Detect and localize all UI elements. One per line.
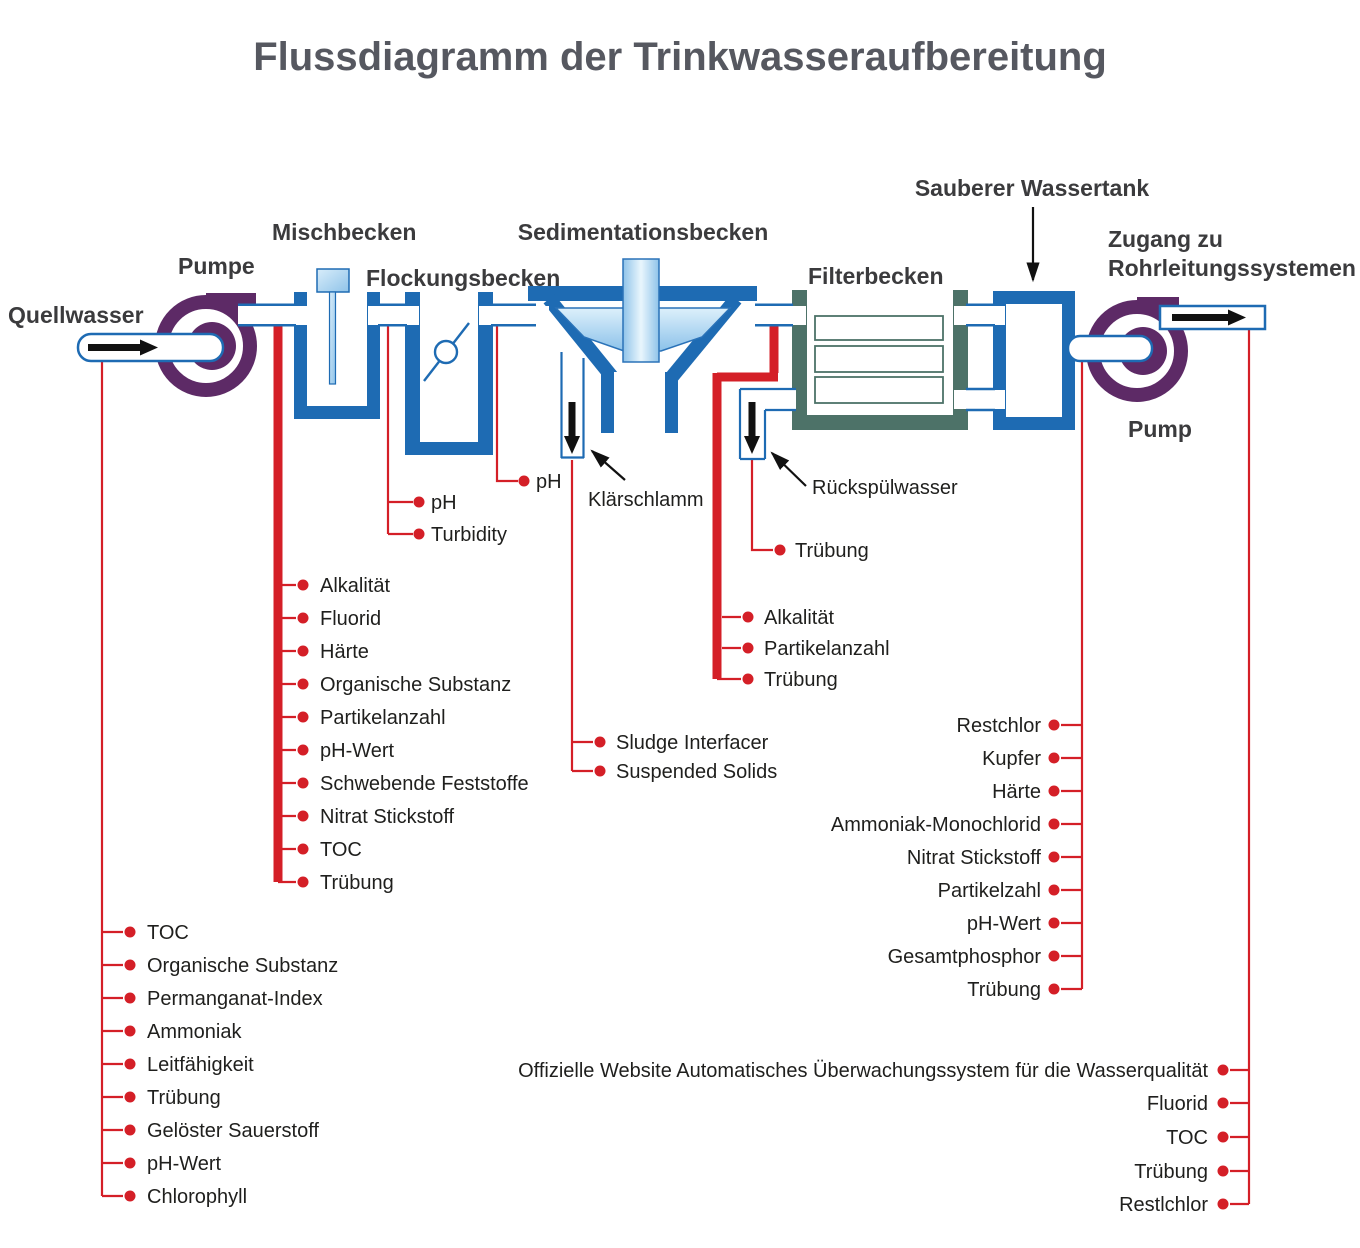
monitor-item-label: TOC (320, 839, 362, 861)
monitor-item-label: Permanganat-Index (147, 988, 323, 1010)
monitor-item-label: TOC (1166, 1127, 1208, 1149)
stage-label-source: Quellwasser (8, 302, 144, 328)
monitor-item-label: Trübung (1134, 1161, 1208, 1183)
backwash-monitor-line (752, 460, 773, 550)
monitor-item-label: Nitrat Stickstoff (320, 806, 455, 828)
monitor-item-label: Nitrat Stickstoff (907, 847, 1042, 869)
monitor-item-label: Fluorid (1147, 1093, 1208, 1115)
monitor-item-label: Suspended Solids (616, 761, 777, 783)
monitor-item-label: Alkalität (764, 607, 834, 629)
monitor-item-label: Restchlor (957, 715, 1042, 737)
monitor-item-label: Trübung (795, 540, 869, 562)
monitor-item-label: Partikelanzahl (764, 638, 890, 660)
stage-label-sedimentation-basin: Sedimentationsbecken (518, 219, 769, 245)
filter-layer (815, 377, 943, 403)
monitor-item-label: Ammoniak (147, 1021, 242, 1043)
source-water-monitor-line (102, 361, 123, 1196)
monitor-item-label: Trübung (147, 1087, 221, 1109)
monitor-item-label: Trübung (320, 872, 394, 894)
monitor-item-label: TOC (147, 922, 189, 944)
stage-label-pipe-access-2: Rohrleitungssystemen (1108, 255, 1356, 281)
sludge-outlet (561, 352, 584, 458)
monitor-item-label: pH-Wert (320, 740, 395, 762)
monitor-item-label: Schwebende Feststoffe (320, 773, 529, 795)
monitor-item-label: Härte (992, 781, 1041, 803)
filter-layer (815, 346, 943, 372)
monitor-item-label: pH (536, 471, 562, 493)
monitor-item-label: Offizielle Website Automatisches Überwac… (518, 1060, 1208, 1082)
monitor-item-label: Partikelanzahl (320, 707, 446, 729)
monitor-item-label: Turbidity (431, 524, 507, 546)
stage-label-inlet-pump: Pumpe (178, 253, 255, 279)
flocculation-outlet-line (497, 326, 518, 481)
monitor-item-label: Gelöster Sauerstoff (147, 1120, 319, 1142)
filter-layer (815, 316, 943, 340)
page-title: Flussdiagramm der Trinkwasseraufbereitun… (253, 35, 1107, 79)
clarifier-shaft (623, 259, 659, 362)
monitor-item-label: Restlchlor (1119, 1194, 1208, 1216)
backwash-pointer-arrow (772, 453, 806, 486)
monitor-item-label: Alkalität (320, 575, 390, 597)
tank-outlet-pipe (1068, 336, 1152, 361)
diagram-canvas: Flussdiagramm der Trinkwasseraufbereitun… (0, 0, 1360, 1248)
mixer-icon (317, 269, 349, 384)
monitor-item-label: pH-Wert (967, 913, 1042, 935)
monitor-item-label: Härte (320, 641, 369, 663)
monitor-item-label: Kupfer (982, 748, 1041, 770)
monitor-item-label: Fluorid (320, 608, 381, 630)
flocculator-valve-icon (424, 323, 469, 381)
water-treatment-flow-diagram: Flussdiagramm der Trinkwasseraufbereitun… (0, 0, 1360, 1248)
monitor-item-label: Organische Substanz (147, 955, 338, 977)
monitor-item-label: Chlorophyll (147, 1186, 247, 1208)
tank-outlet-monitor-line (1061, 361, 1082, 989)
monitor-item-label: pH-Wert (147, 1153, 222, 1175)
backwash-outlet (740, 389, 796, 459)
stage-label-filter-basin: Filterbecken (808, 263, 944, 289)
monitor-item-label: pH (431, 492, 457, 514)
stage-label-mixing-basin: Mischbecken (272, 219, 416, 245)
clean-water-tank (993, 291, 1075, 430)
monitor-item-label: Ammoniak-Monochlorid (831, 814, 1041, 836)
monitor-item-label: Partikelzahl (938, 880, 1041, 902)
monitor-item-label: Gesamtphosphor (888, 946, 1042, 968)
stage-label-clean-water-tank: Sauberer Wassertank (915, 175, 1150, 201)
stage-label-flocculation-basin: Flockungsbecken (366, 265, 560, 291)
stage-label-pipe-access-1: Zugang zu (1108, 226, 1223, 252)
monitor-item-label: Organische Substanz (320, 674, 511, 696)
sludge-label: Klärschlamm (588, 489, 704, 511)
sludge-pointer-arrow (592, 451, 625, 480)
monitor-item-label: Sludge Interfacer (616, 732, 769, 754)
monitor-item-label: Leitfähigkeit (147, 1054, 254, 1076)
backwash-label: Rückspülwasser (812, 477, 958, 499)
monitor-item-label: Trübung (764, 669, 838, 691)
monitor-item-label: Trübung (967, 979, 1041, 1001)
distribution-monitor-line (1230, 329, 1249, 1204)
stage-label-outlet-pump: Pump (1128, 416, 1192, 442)
